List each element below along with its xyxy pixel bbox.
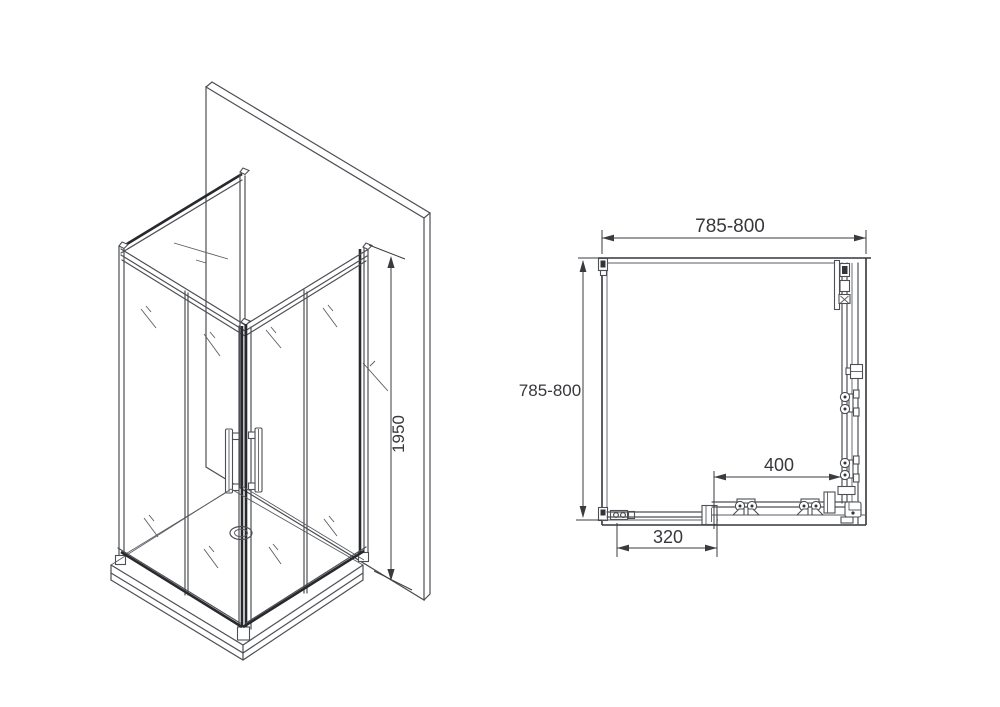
door-opening-dimension: 400 (714, 455, 841, 529)
top-frame-rails (121, 249, 367, 336)
top-width-dimension: 785-800 (602, 216, 866, 254)
left-depth-label: 785-800 (519, 381, 581, 400)
roller-assembly (840, 456, 859, 482)
roller-assembly (840, 390, 859, 416)
height-dimension: 1950 (369, 245, 412, 590)
technical-drawing-page: 1950 (0, 0, 1000, 707)
left-depth-dimension: 785-800 (519, 258, 602, 520)
wall-anchor-top-left (599, 259, 608, 276)
side-glass-panel (119, 174, 242, 558)
fixed-panel-label: 320 (653, 527, 683, 547)
height-dimension-label: 1950 (389, 415, 408, 453)
isometric-view: 1950 (111, 82, 430, 660)
top-right-bracket (835, 261, 851, 310)
corner-connector (824, 487, 861, 524)
wall-bracket (846, 365, 863, 379)
door-handles (226, 428, 263, 493)
enclosure-outline (598, 258, 871, 525)
top-width-label: 785-800 (695, 216, 765, 237)
wall-anchor-bottom-left (599, 508, 635, 521)
plan-view: 785-800 785-800 400 320 (519, 216, 871, 557)
bottom-door-track (712, 499, 866, 515)
door-opening-label: 400 (764, 455, 794, 475)
